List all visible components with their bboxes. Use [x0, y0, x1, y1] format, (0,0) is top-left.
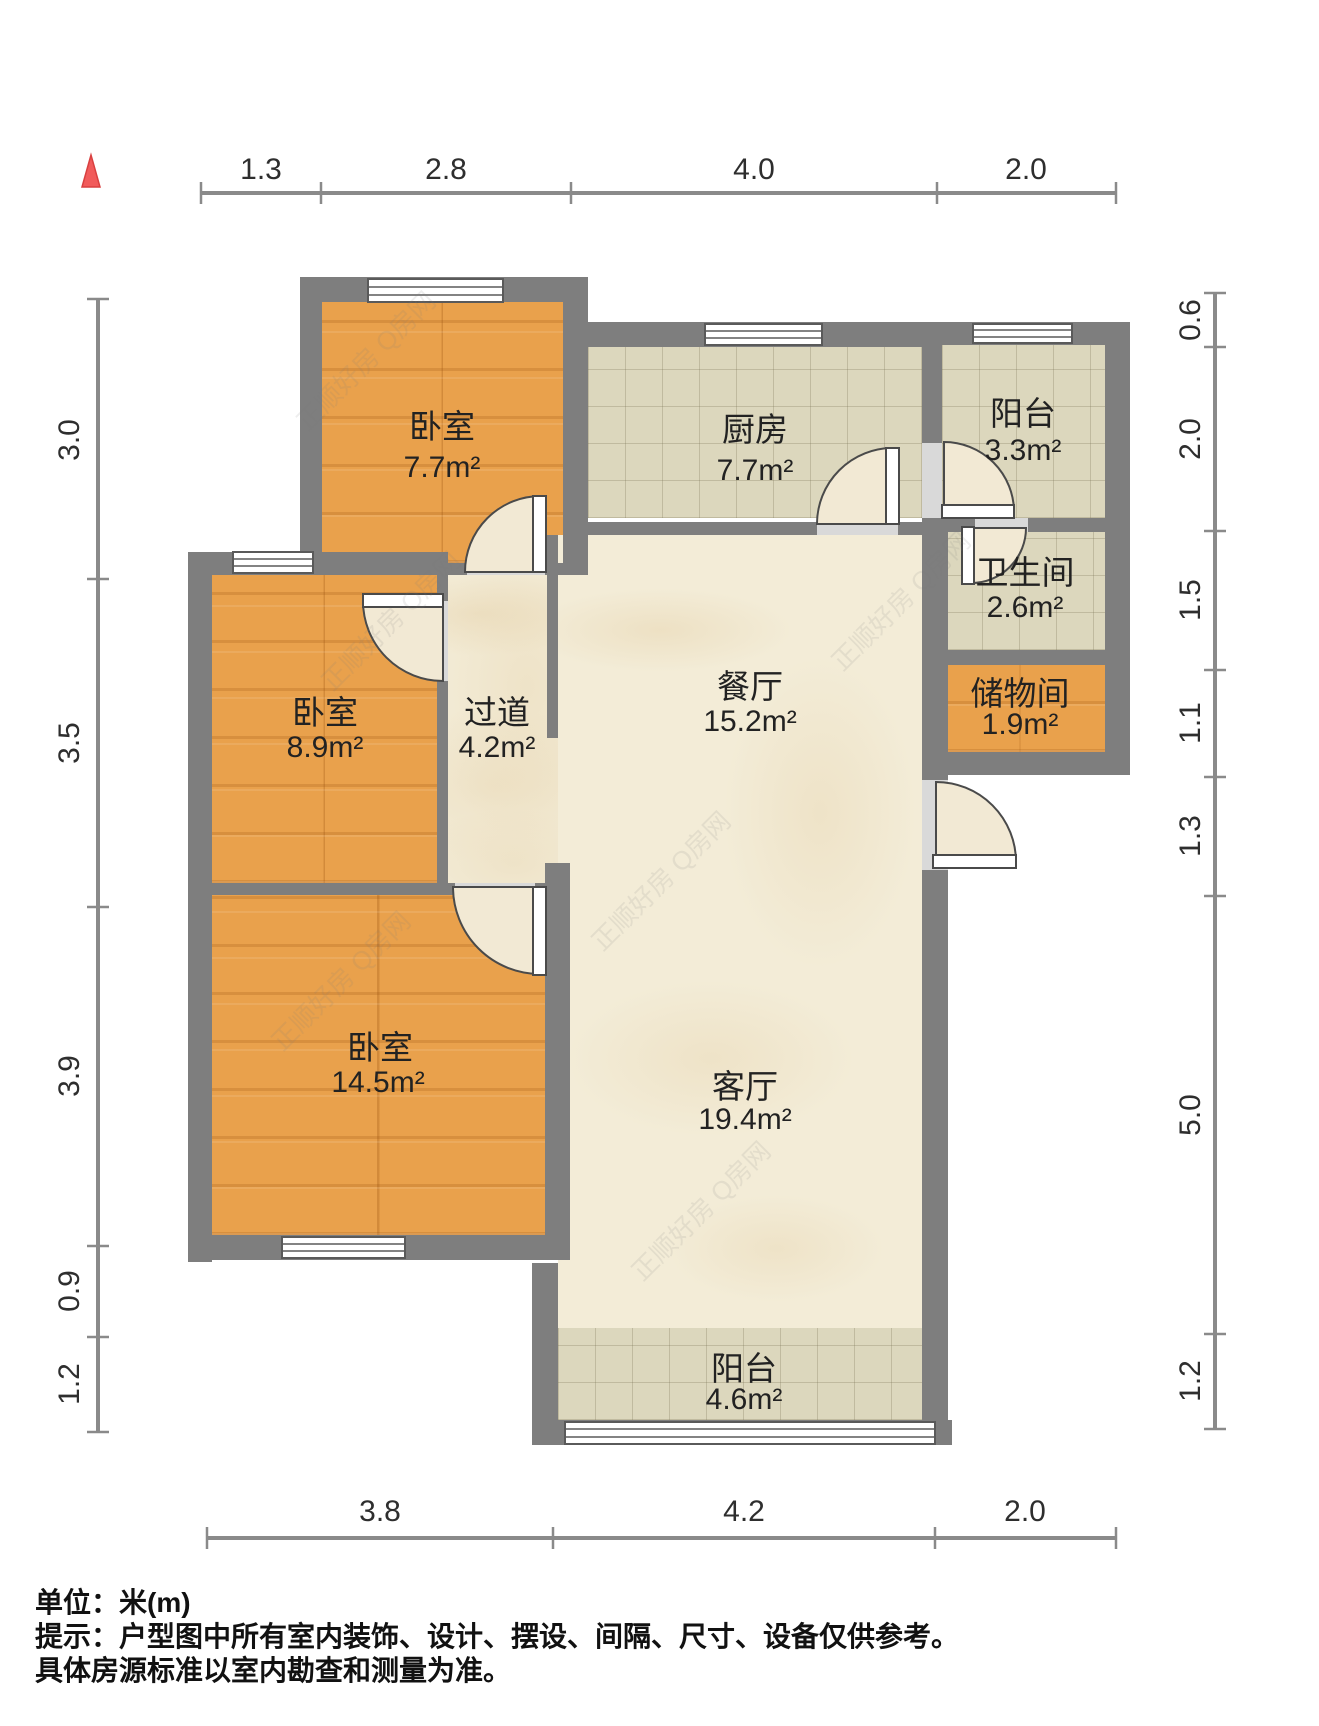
- window: [233, 552, 313, 573]
- room-area: 19.4m²: [698, 1103, 791, 1137]
- room-name: 餐厅: [717, 660, 783, 708]
- room-name: 卧室: [347, 1021, 413, 1069]
- room-area: 14.5m²: [331, 1066, 424, 1100]
- dim-label: 1.1: [1174, 702, 1208, 744]
- window: [973, 324, 1072, 343]
- dim-label: 1.3: [240, 153, 282, 187]
- door-bedroom-top: [465, 496, 546, 572]
- room-area: 7.7m²: [717, 454, 794, 488]
- window: [282, 1237, 405, 1258]
- dim-label: 3.8: [359, 1495, 401, 1529]
- dim-label: 2.8: [425, 153, 467, 187]
- compass-north-icon: [82, 155, 100, 187]
- footer-notes: 单位：米(m) 提示：户型图中所有室内装饰、设计、摆设、间隔、尺寸、设备仅供参考…: [35, 1586, 959, 1688]
- dim-label: 4.0: [733, 153, 775, 187]
- dim-label: 1.2: [53, 1363, 87, 1405]
- room-name: 厨房: [722, 403, 788, 451]
- room-area: 4.6m²: [706, 1383, 783, 1417]
- dim-label: 3.9: [53, 1055, 87, 1097]
- dim-label: 3.0: [53, 419, 87, 461]
- room-name: 过道: [464, 686, 530, 734]
- room-name: 卧室: [409, 400, 475, 448]
- window: [705, 324, 822, 345]
- footer-unit-note: 单位：米(m): [35, 1586, 959, 1620]
- dim-label: 0.9: [53, 1270, 87, 1312]
- door-bedroom-bottom: [453, 887, 546, 975]
- room-area: 4.2m²: [459, 731, 536, 765]
- room-area: 2.6m²: [987, 591, 1064, 625]
- dimension-line-right: [1204, 293, 1226, 1429]
- room-name: 卧室: [292, 686, 358, 734]
- room-area: 1.9m²: [982, 708, 1059, 742]
- floorplan-page: 1.3 2.8 4.0 2.0 3.8 4.2 2.0 3.0 3.5 3.9 …: [0, 0, 1319, 1726]
- footer-disclaimer2: 具体房源标准以室内勘查和测量为准。: [35, 1654, 959, 1688]
- door-kitchen: [817, 448, 899, 524]
- dim-label: 0.6: [1174, 299, 1208, 341]
- dim-label: 1.2: [1174, 1360, 1208, 1402]
- window: [368, 279, 503, 302]
- room-area: 7.7m²: [404, 451, 481, 485]
- dimension-line-left: [87, 299, 109, 1432]
- dimension-line-top: [201, 182, 1116, 204]
- room-name: 客厅: [712, 1060, 778, 1108]
- dim-label: 2.0: [1174, 418, 1208, 460]
- room-name: 阳台: [990, 387, 1056, 435]
- dim-label: 2.0: [1004, 1495, 1046, 1529]
- dim-label: 1.5: [1174, 579, 1208, 621]
- room-area: 8.9m²: [287, 731, 364, 765]
- dim-label: 2.0: [1005, 153, 1047, 187]
- window: [565, 1422, 935, 1444]
- dim-label: 3.5: [53, 722, 87, 764]
- door-entrance: [933, 782, 1016, 868]
- room-area: 15.2m²: [703, 705, 796, 739]
- dimension-line-bottom: [207, 1527, 1116, 1549]
- dim-label: 4.2: [723, 1495, 765, 1529]
- room-name: 卫生间: [976, 546, 1075, 594]
- footer-disclaimer: 提示：户型图中所有室内装饰、设计、摆设、间隔、尺寸、设备仅供参考。: [35, 1620, 959, 1654]
- dim-label: 1.3: [1174, 815, 1208, 857]
- room-area: 3.3m²: [985, 434, 1062, 468]
- dim-label: 5.0: [1174, 1094, 1208, 1136]
